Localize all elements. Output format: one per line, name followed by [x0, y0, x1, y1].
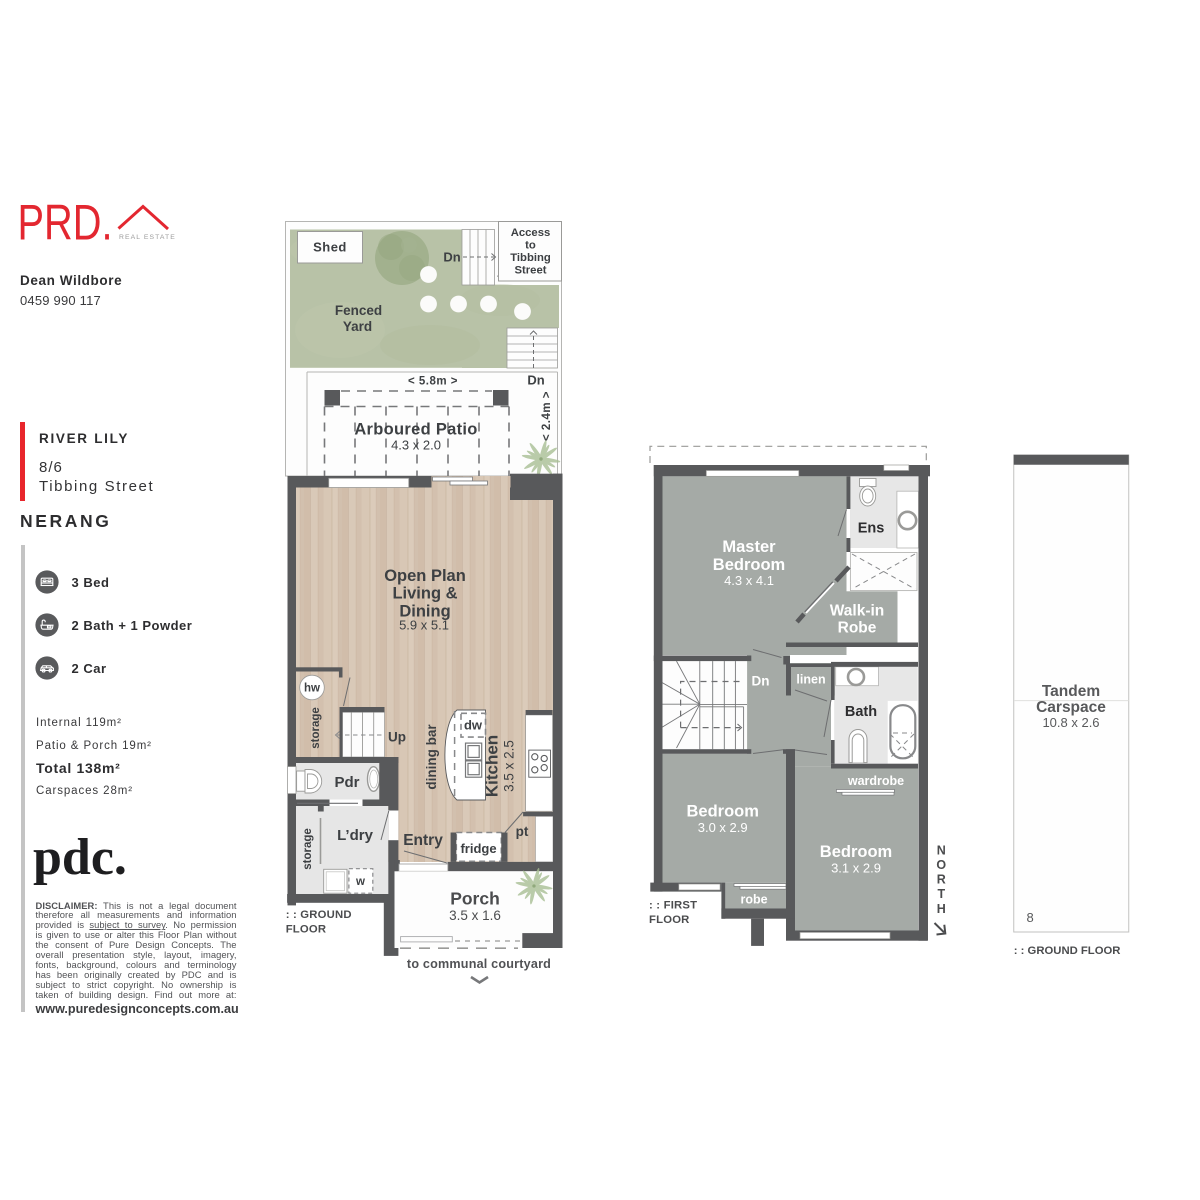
svg-text:Street: Street	[514, 265, 546, 277]
svg-text:Kitchen: Kitchen	[483, 735, 502, 797]
svg-text:3.5 x 1.6: 3.5 x 1.6	[449, 908, 501, 923]
svg-text:Bath: Bath	[845, 704, 877, 720]
svg-text:Pdr: Pdr	[334, 774, 359, 791]
svg-text:8: 8	[1027, 910, 1034, 925]
svg-text:5.9 x 5.1: 5.9 x 5.1	[399, 618, 449, 633]
svg-text:Dn: Dn	[527, 373, 544, 388]
svg-text:4.3 x 4.1: 4.3 x 4.1	[724, 573, 774, 588]
svg-text:< 2.4m >: < 2.4m >	[541, 391, 553, 441]
svg-text:L’dry: L’dry	[337, 827, 374, 844]
svg-text:4.3 x 2.0: 4.3 x 2.0	[391, 438, 441, 453]
svg-text:Arboured Patio: Arboured Patio	[354, 421, 477, 439]
svg-text:fridge: fridge	[460, 841, 496, 856]
svg-text:to: to	[525, 240, 536, 252]
svg-text:Bedroom: Bedroom	[686, 803, 758, 821]
svg-text:Dn: Dn	[443, 250, 460, 265]
svg-text:FLOOR: FLOOR	[286, 924, 327, 936]
svg-text:robe: robe	[740, 893, 767, 907]
svg-text:Ens: Ens	[858, 521, 885, 537]
svg-text:Yard: Yard	[343, 319, 372, 334]
svg-text:Tandem: Tandem	[1042, 683, 1100, 700]
svg-text:T: T	[937, 887, 945, 901]
svg-text:Open Plan: Open Plan	[384, 567, 466, 585]
svg-text:storage: storage	[310, 707, 322, 749]
svg-text:Porch: Porch	[450, 889, 500, 909]
svg-text:Living &: Living &	[392, 585, 457, 603]
svg-text:w: w	[355, 876, 365, 888]
svg-text:Bedroom: Bedroom	[713, 556, 785, 574]
svg-text:Fenced: Fenced	[335, 303, 382, 318]
svg-text:: : FIRST: : : FIRST	[649, 900, 697, 912]
svg-text:N: N	[937, 843, 946, 857]
svg-text:3.5 x 2.5: 3.5 x 2.5	[502, 740, 517, 792]
svg-text:Entry: Entry	[403, 832, 443, 849]
svg-text:to communal courtyard: to communal courtyard	[407, 957, 551, 971]
svg-text:Dn: Dn	[752, 674, 770, 689]
svg-text:wardrobe: wardrobe	[847, 774, 904, 788]
svg-text:Up: Up	[388, 730, 406, 745]
svg-text:: : GROUND: : : GROUND	[286, 909, 352, 921]
svg-text:FLOOR: FLOOR	[649, 914, 690, 926]
svg-text:H: H	[937, 902, 946, 916]
svg-text:O: O	[936, 858, 946, 872]
svg-text:3.0 x 2.9: 3.0 x 2.9	[698, 820, 748, 835]
svg-text:Master: Master	[722, 538, 776, 556]
svg-text:storage: storage	[302, 828, 314, 870]
svg-text:dining bar: dining bar	[424, 724, 439, 790]
svg-text:Bedroom: Bedroom	[820, 843, 892, 861]
svg-text:10.8 x 2.6: 10.8 x 2.6	[1042, 715, 1099, 730]
svg-text:hw: hw	[304, 683, 320, 695]
svg-text:Tibbing: Tibbing	[510, 252, 551, 264]
svg-text:< 5.8m >: < 5.8m >	[408, 376, 458, 388]
svg-text:Shed: Shed	[313, 240, 347, 255]
svg-text:3.1 x 2.9: 3.1 x 2.9	[831, 861, 881, 876]
svg-text:: : GROUND FLOOR: : : GROUND FLOOR	[1014, 945, 1121, 957]
svg-text:pt: pt	[516, 824, 529, 839]
svg-text:Robe: Robe	[838, 620, 877, 637]
svg-text:R: R	[937, 873, 946, 887]
svg-text:Carspace: Carspace	[1036, 699, 1106, 716]
svg-text:Walk-in: Walk-in	[830, 603, 885, 620]
svg-text:Access: Access	[511, 227, 551, 239]
svg-text:linen: linen	[796, 673, 825, 687]
svg-text:dw: dw	[464, 718, 483, 733]
